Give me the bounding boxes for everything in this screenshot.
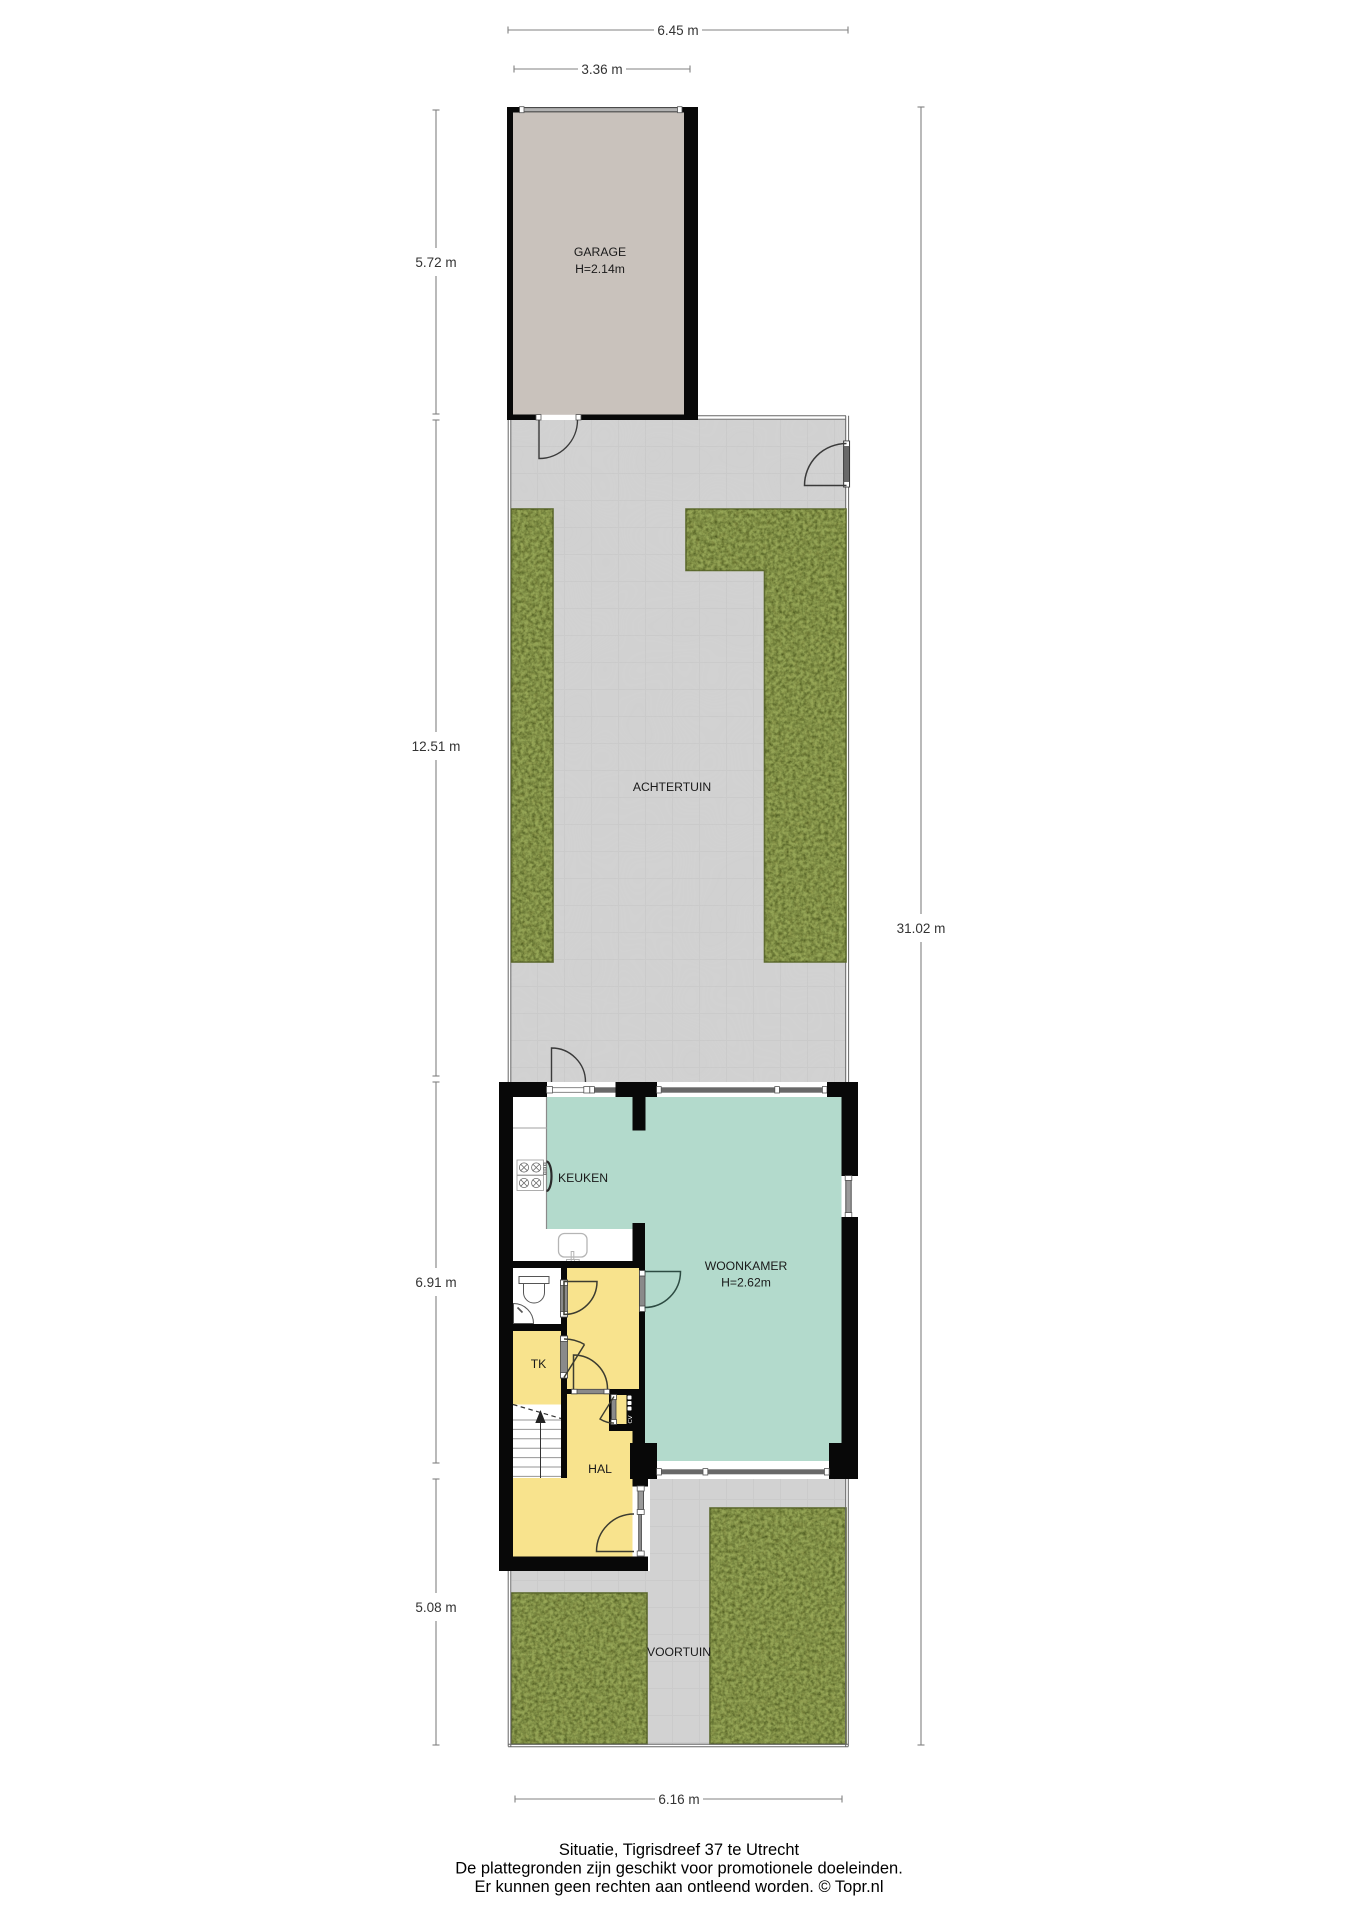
svg-text:H=2.14m: H=2.14m — [575, 262, 625, 276]
svg-text:6.45 m: 6.45 m — [657, 23, 698, 38]
svg-text:3.36 m: 3.36 m — [581, 62, 622, 77]
svg-text:Situatie, Tigrisdreef 37 te Ut: Situatie, Tigrisdreef 37 te Utrecht — [559, 1841, 800, 1859]
svg-text:5.08 m: 5.08 m — [415, 1600, 456, 1615]
svg-text:H=2.62m: H=2.62m — [721, 1276, 771, 1290]
svg-text:De plattegronden zijn geschikt: De plattegronden zijn geschikt voor prom… — [455, 1860, 903, 1878]
svg-text:VOORTUIN: VOORTUIN — [647, 1645, 711, 1659]
svg-text:12.51 m: 12.51 m — [412, 739, 461, 754]
svg-text:TK: TK — [531, 1357, 547, 1371]
svg-text:CV: CV — [628, 1415, 634, 1423]
svg-text:GARAGE: GARAGE — [574, 245, 626, 259]
svg-text:Er kunnen geen rechten aan ont: Er kunnen geen rechten aan ontleend word… — [474, 1878, 883, 1896]
svg-text:WOONKAMER: WOONKAMER — [705, 1259, 788, 1273]
svg-text:HAL: HAL — [588, 1462, 612, 1476]
svg-text:ACHTERTUIN: ACHTERTUIN — [633, 780, 711, 794]
svg-text:KEUKEN: KEUKEN — [558, 1171, 608, 1185]
svg-text:6.91 m: 6.91 m — [415, 1275, 456, 1290]
svg-text:6.16 m: 6.16 m — [658, 1792, 699, 1807]
svg-text:31.02 m: 31.02 m — [897, 921, 946, 936]
svg-text:5.72 m: 5.72 m — [415, 255, 456, 270]
